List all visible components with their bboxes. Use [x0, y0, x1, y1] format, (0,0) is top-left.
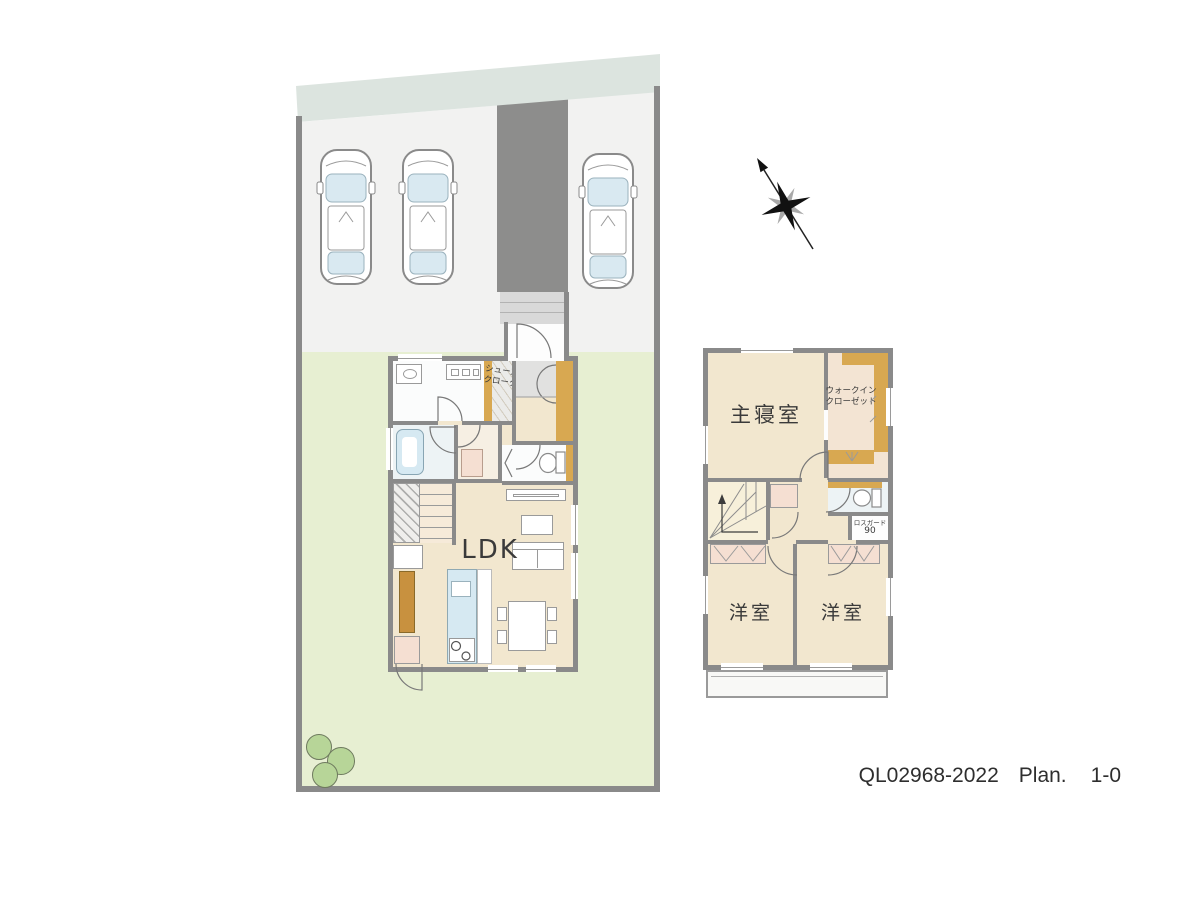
- site-wall-left: [296, 116, 302, 792]
- western-room-2-door-swing: [828, 546, 857, 575]
- plan-footer: QL02968-2022 Plan. 1-0: [855, 764, 1121, 788]
- plan-number: 1-0: [1091, 764, 1121, 788]
- stairs-2f-arrow: [718, 494, 758, 532]
- stove-burner: [452, 642, 461, 651]
- hall-closet-door-swing: [772, 512, 798, 538]
- first-floor-linework: [380, 300, 590, 700]
- site-wall-bottom: [296, 786, 660, 792]
- closet-door-swing: [537, 384, 556, 403]
- parked-cars: [312, 142, 648, 294]
- bush: [312, 762, 338, 788]
- closet-hanger-marks: [714, 396, 876, 561]
- closet-door-swing: [537, 365, 556, 384]
- western-room-1-door-swing: [768, 546, 797, 575]
- bath-door-swing: [430, 427, 456, 453]
- toilet-tank-1f: [556, 452, 565, 473]
- stove-burner: [462, 652, 470, 660]
- stairs-2f-treads: [710, 482, 766, 538]
- entrance-door-swing: [517, 324, 551, 358]
- north-arrow-icon: [735, 125, 855, 265]
- plan-word: Plan.: [1019, 764, 1067, 788]
- toilet-tank-2f: [872, 489, 881, 507]
- bedroom-door-swing: [800, 452, 828, 480]
- car-3: [579, 154, 637, 288]
- toilet-door-swing: [826, 488, 850, 512]
- car-1: [317, 150, 375, 284]
- hall-door-swing: [516, 445, 540, 469]
- plan-code: QL02968-2022: [859, 764, 999, 788]
- toilet-folding-door: [505, 449, 512, 477]
- toilet-bowl-1f: [540, 454, 557, 473]
- toilet-bowl-2f: [854, 490, 871, 506]
- site-wall-right: [654, 86, 660, 792]
- car-2: [399, 150, 457, 284]
- second-floor-linework: [695, 340, 905, 680]
- floorplan-canvas: シューズ クローク: [0, 0, 1200, 900]
- compass-arrowhead: [757, 158, 768, 172]
- compass-star-primary: [762, 182, 811, 231]
- back-door-swing: [396, 664, 422, 690]
- utility-door-swing: [438, 397, 462, 421]
- washroom-door-swing: [458, 425, 480, 447]
